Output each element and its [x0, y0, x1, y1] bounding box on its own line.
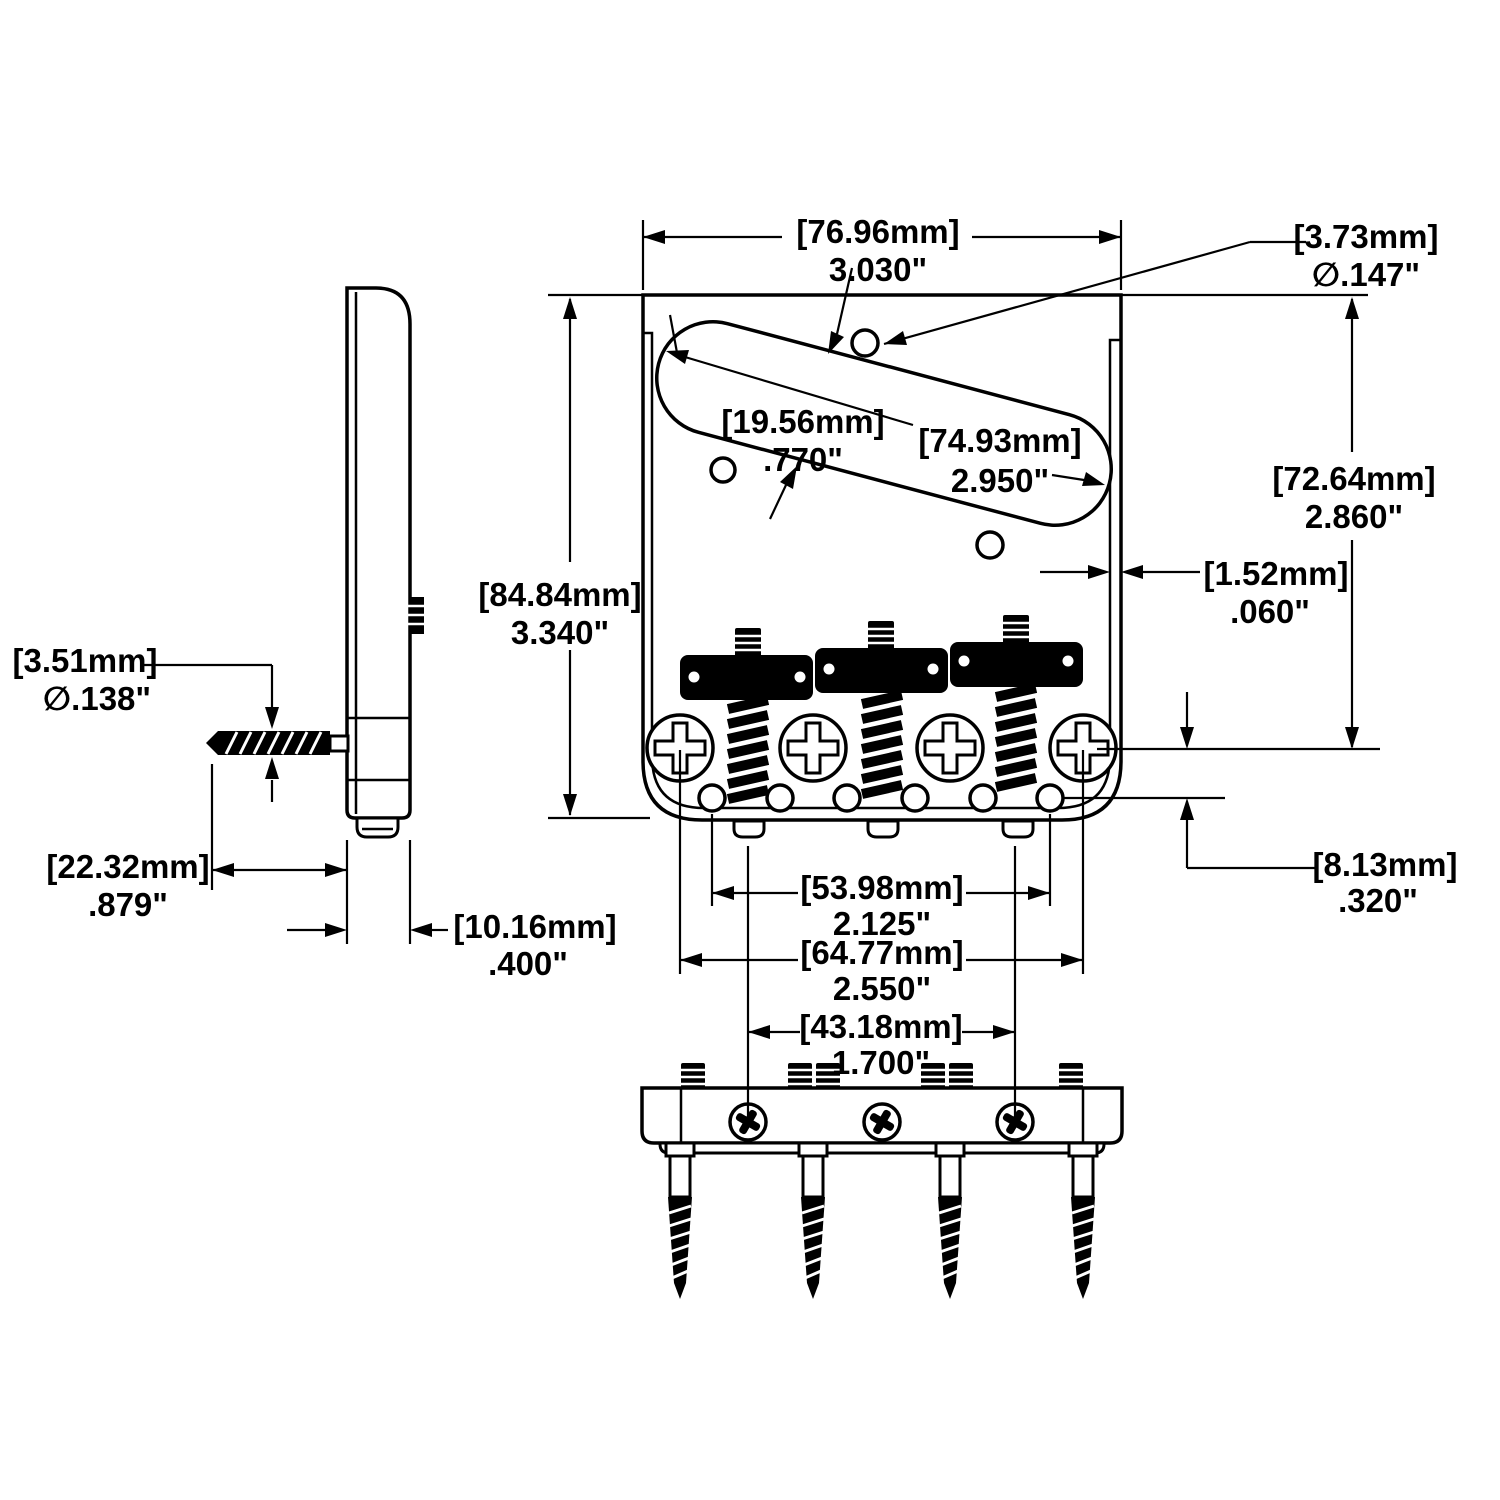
pickup-mount-hole-right: [977, 532, 1003, 558]
mount-screw-3: [917, 715, 983, 781]
bridge-dimension-drawing: [76.96mm] 3.030" [3.73mm] ∅.147" [84.84m…: [0, 0, 1500, 1500]
dim-plate-length: [84.84mm] 3.340": [478, 295, 650, 818]
wood-screw-dia-in-label: ∅.138": [43, 680, 151, 717]
dim-wood-screw-diameter: [3.51mm] ∅.138": [13, 642, 279, 802]
side-intonation-screw-end: [408, 597, 426, 634]
dim-top-edge-to-screws: [72.64mm] 2.860": [1097, 295, 1436, 749]
wood-screw-length-mm-label: [22.32mm]: [46, 848, 209, 885]
wood-screw-length-in-label: .879": [88, 886, 168, 923]
pickup-cutout-length-in-label: 2.950": [951, 462, 1049, 499]
side-profile-depth-mm-label: [10.16mm]: [453, 908, 616, 945]
string-hole-spacing-mm-label: [53.98mm]: [800, 869, 963, 906]
top-view: [643, 295, 1121, 837]
front-plate-lip: [660, 1143, 1104, 1153]
intonation-screw-heads: [734, 821, 1033, 837]
pickup-cutout-width-in-label: .770": [763, 441, 843, 478]
pickup-mount-hole-left: [711, 458, 735, 482]
side-screw-head: [357, 818, 398, 837]
top-edge-to-screws-in-label: 2.860": [1305, 498, 1403, 535]
plate-length-mm-label: [84.84mm]: [478, 576, 641, 613]
intonation-screw-spacing-in-label: 1.700": [832, 1044, 930, 1081]
intonation-screw-spacing-mm-label: [43.18mm]: [799, 1008, 962, 1045]
wood-screw: [1069, 1143, 1097, 1299]
mount-screw-2: [780, 715, 846, 781]
dim-plate-width: [76.96mm] 3.030": [643, 213, 1121, 290]
mount-screw-spacing-in-label: 2.550": [833, 970, 931, 1007]
side-wood-screw: [206, 731, 348, 755]
wood-screw-dia-mm-label: [3.51mm]: [13, 642, 158, 679]
front-view: [642, 1063, 1122, 1299]
mount-screw-spacing-mm-label: [64.77mm]: [800, 934, 963, 971]
screws-to-string-holes-mm-label: [8.13mm]: [1313, 846, 1458, 883]
side-wood-screw-shank: [330, 736, 348, 751]
pickup-cutout-length-mm-label: [74.93mm]: [918, 422, 1081, 459]
top-edge-to-screws-mm-label: [72.64mm]: [1272, 460, 1435, 497]
plate-width-mm-label: [76.96mm]: [796, 213, 959, 250]
side-view: [206, 288, 426, 837]
plate-length-in-label: 3.340": [511, 614, 609, 651]
mount-hole-dia-in-label: ∅.147": [1312, 256, 1420, 293]
pickup-mount-hole-top: [852, 330, 878, 356]
wood-screw: [936, 1143, 964, 1299]
front-wood-screws: [666, 1143, 1097, 1299]
plate-width-in-label: 3.030": [829, 251, 927, 288]
wall-thickness-mm-label: [1.52mm]: [1204, 555, 1349, 592]
mount-hole-dia-mm-label: [3.73mm]: [1294, 218, 1439, 255]
technical-drawing-canvas: [76.96mm] 3.030" [3.73mm] ∅.147" [84.84m…: [0, 0, 1500, 1500]
screws-to-string-holes-in-label: .320": [1338, 882, 1418, 919]
wood-screw: [666, 1143, 694, 1299]
wall-thickness-in-label: .060": [1230, 593, 1310, 630]
dim-side-profile-depth: [10.16mm] .400": [287, 840, 617, 982]
wood-screw: [799, 1143, 827, 1299]
dim-wood-screw-length: [22.32mm] .879": [46, 764, 347, 944]
side-profile-depth-in-label: .400": [488, 945, 568, 982]
